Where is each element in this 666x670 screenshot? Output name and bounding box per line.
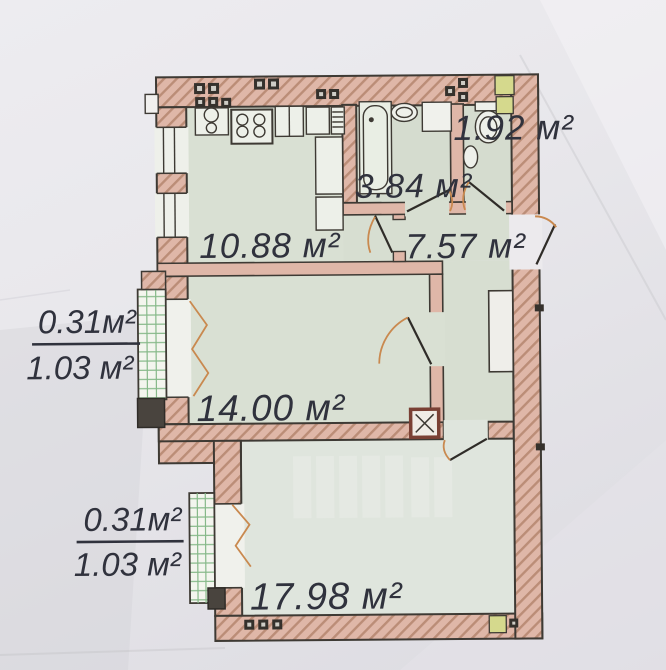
room-label-hallway: 7.57 м² — [405, 226, 526, 266]
balcony-upper-full-area: 1.03 м² — [26, 349, 134, 387]
room-label-living-room: 14.00 м² — [196, 387, 346, 429]
stove-icon — [231, 109, 272, 143]
kitchen-counter-side-icon — [315, 137, 342, 194]
room-label-bedroom: 17.98 м² — [250, 575, 403, 618]
balcony-upper-cap-bottom — [137, 398, 164, 427]
floor-plan-drawing: 10.88 м² 3.84 м² 1.92 м² 7.57 м² 14.00 м… — [0, 0, 666, 670]
balcony-upper-counted-area: 0.31м² — [38, 303, 137, 341]
wc-hand-sink-icon — [464, 146, 478, 168]
wall-kitchen-hall-stub-bottom — [393, 251, 405, 261]
room-label-toilet: 1.92 м² — [453, 108, 574, 148]
wall-right — [511, 74, 542, 638]
wall-kitchen-hall-stub-top — [393, 214, 405, 219]
washing-machine-icon — [422, 102, 451, 131]
balcony-area-fraction-lower: 0.31м² 1.03 м² — [73, 500, 184, 583]
room-label-kitchen: 10.88 м² — [199, 226, 341, 266]
corridor-niche — [489, 291, 514, 372]
balcony-upper — [136, 271, 166, 427]
balcony-lower-full-area: 1.03 м² — [74, 545, 182, 583]
bedroom-wardrobe-ghost — [293, 455, 452, 518]
bath-sink-icon — [391, 103, 417, 121]
balcony-lower-counted-area: 0.31м² — [83, 500, 182, 538]
living-door-opening — [428, 312, 445, 366]
wall-notch — [145, 94, 158, 113]
room-label-bathroom: 3.84 м² — [355, 167, 473, 206]
column-icon — [411, 409, 439, 437]
bedroom-door-opening — [444, 420, 488, 441]
wall-corridor-bedroom-stub — [488, 422, 514, 439]
balcony-upper-cap-top — [141, 271, 165, 289]
vent-grille-icon — [331, 107, 344, 134]
kitchen-sink-icon — [195, 108, 228, 135]
floor-plan-photo: 10.88 м² 3.84 м² 1.92 м² 7.57 м² 14.00 м… — [0, 0, 666, 670]
kitchen-window-2 — [155, 193, 189, 237]
kitchen-window-1 — [154, 127, 188, 173]
kitchen-counter-icon — [275, 106, 303, 136]
fridge-icon — [306, 107, 329, 134]
balcony-lower-cap-bottom — [208, 588, 225, 609]
balcony-area-fraction-upper: 0.31м² 1.03 м² — [26, 303, 141, 387]
